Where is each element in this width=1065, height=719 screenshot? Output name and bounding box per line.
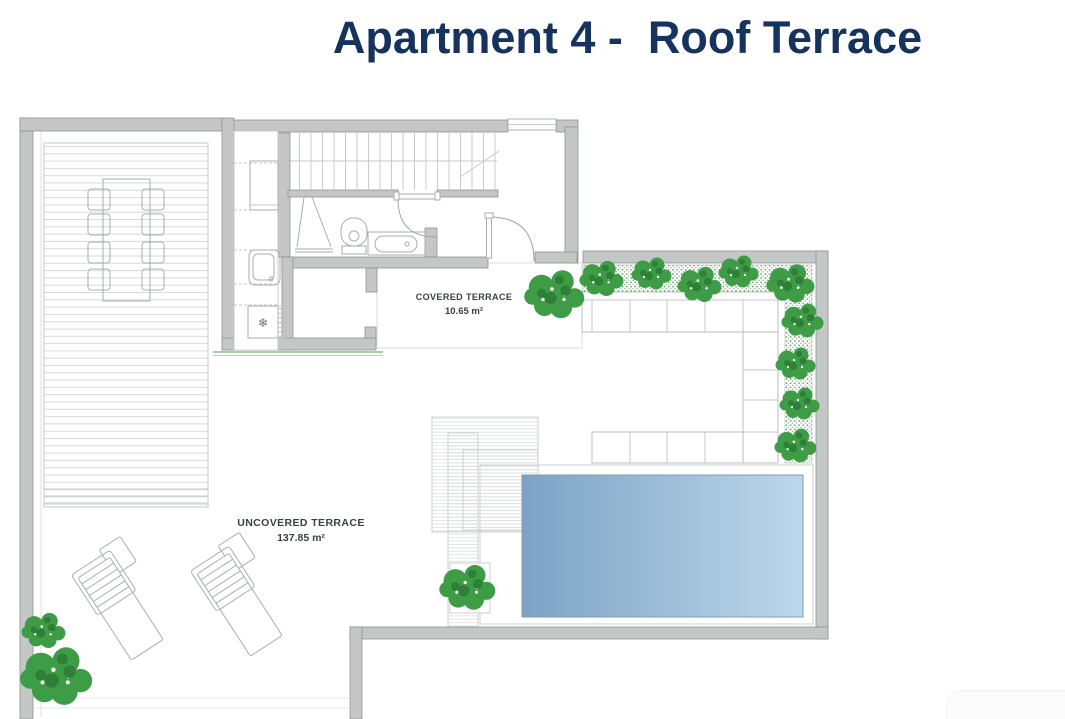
- sun-lounger: [187, 532, 299, 658]
- wall: [282, 257, 488, 268]
- floor-plan-page: Apartment 4 - Roof Terrace: [0, 0, 1065, 719]
- wall: [565, 127, 578, 263]
- floor-plan: ❄: [0, 0, 1065, 719]
- window: [508, 119, 556, 130]
- sun-lounger: [68, 536, 180, 662]
- wall: [425, 228, 437, 257]
- wall: [350, 627, 828, 639]
- svg-text:137.85 m²: 137.85 m²: [277, 532, 325, 544]
- vanity-sink: [368, 232, 425, 255]
- wall: [350, 627, 362, 719]
- svg-text:UNCOVERED TERRACE: UNCOVERED TERRACE: [237, 517, 365, 529]
- wall: [583, 251, 828, 263]
- built-in-bench-top: [582, 292, 778, 332]
- wall: [437, 190, 498, 197]
- wall: [288, 190, 398, 197]
- glass-balustrade-line: [213, 352, 383, 356]
- stairs: [290, 133, 499, 190]
- built-in-bench-bottom: [592, 432, 743, 463]
- freezer-snowflake-icon: ❄: [258, 316, 268, 330]
- wall: [222, 120, 508, 132]
- wall: [535, 252, 577, 263]
- wall: [816, 251, 828, 639]
- uncovered-terrace-label: UNCOVERED TERRACE 137.85 m²: [237, 517, 365, 544]
- svg-text:10.65 m²: 10.65 m²: [445, 306, 483, 317]
- shower: [295, 197, 333, 252]
- svg-text:COVERED TERRACE: COVERED TERRACE: [416, 292, 513, 302]
- terrace-boundary-lines: [35, 698, 350, 708]
- terrace-door: [485, 213, 534, 261]
- floating-widget-fragment[interactable]: [946, 690, 1065, 719]
- wall: [20, 118, 222, 131]
- toilet: [341, 218, 367, 254]
- wall: [222, 118, 234, 350]
- swimming-pool: [522, 475, 803, 617]
- wall: [366, 268, 377, 292]
- built-in-bench-right: [743, 332, 778, 463]
- kitchen-counter: ❄: [234, 131, 286, 350]
